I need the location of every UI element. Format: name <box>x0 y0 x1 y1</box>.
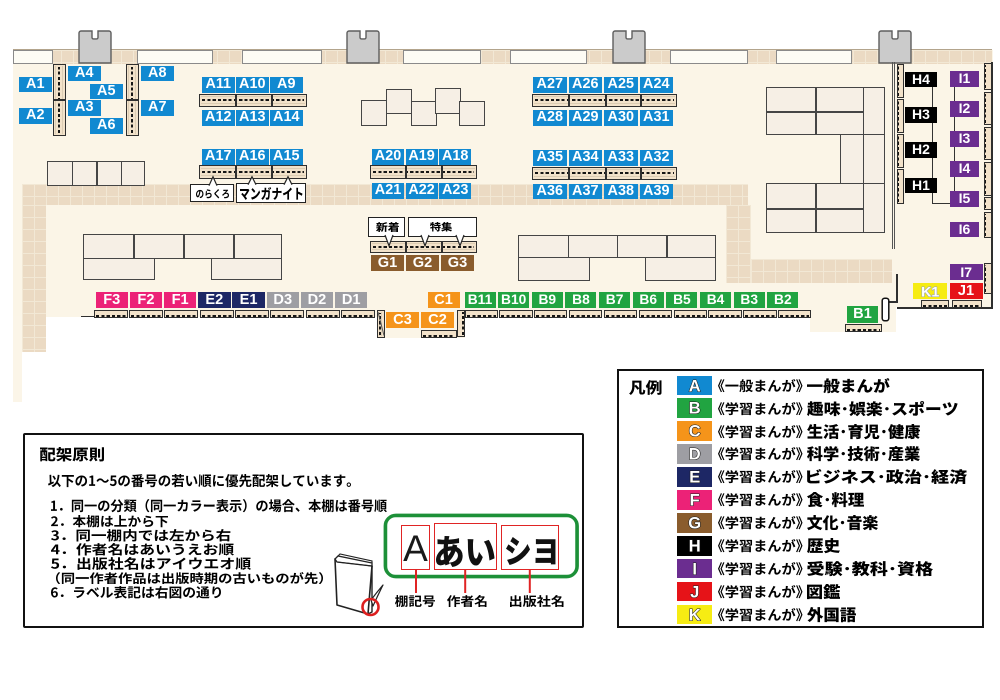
svg-text:K: K <box>688 607 700 625</box>
svg-text:H: H <box>688 538 700 556</box>
svg-text:J: J <box>690 584 699 602</box>
svg-text:D: D <box>688 446 700 464</box>
svg-text:A: A <box>688 377 700 395</box>
svg-text:B: B <box>688 400 700 418</box>
svg-text:F: F <box>689 492 699 510</box>
svg-text:C: C <box>688 423 700 441</box>
svg-text:K1: K1 <box>921 284 939 299</box>
svg-text:I: I <box>692 561 697 579</box>
svg-text:E: E <box>689 469 700 487</box>
svg-text:G: G <box>688 515 701 533</box>
